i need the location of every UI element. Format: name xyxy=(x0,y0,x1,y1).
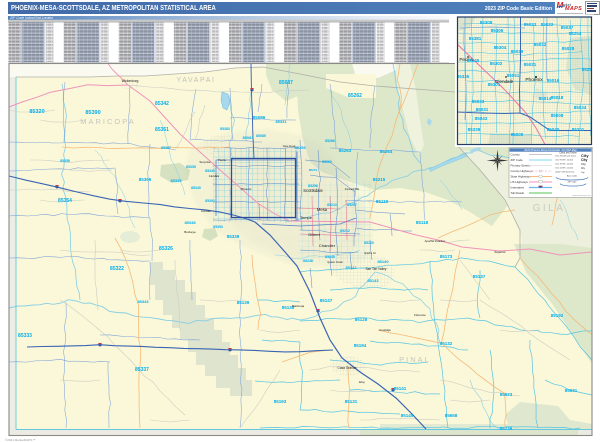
svg-text:85016: 85016 xyxy=(547,78,560,83)
svg-text:85193: 85193 xyxy=(274,399,287,404)
svg-text:State Highways: State Highways xyxy=(511,175,532,179)
svg-text:Superior: Superior xyxy=(494,250,505,254)
svg-text:85339: 85339 xyxy=(468,127,481,132)
svg-text:85264: 85264 xyxy=(380,149,393,154)
svg-text:85215: 85215 xyxy=(373,177,386,182)
svg-text:85658: 85658 xyxy=(445,413,458,418)
svg-text:85139: 85139 xyxy=(237,300,250,305)
svg-text:Eloy: Eloy xyxy=(359,380,365,384)
svg-text:85008: 85008 xyxy=(551,113,564,118)
svg-text:Avondale: Avondale xyxy=(201,210,212,213)
svg-text:85083: 85083 xyxy=(242,135,254,140)
svg-text:Toll Roads: Toll Roads xyxy=(511,191,525,195)
svg-text:GILA: GILA xyxy=(533,203,566,214)
svg-text:85173: 85173 xyxy=(440,254,453,259)
svg-text:85306: 85306 xyxy=(491,28,504,33)
svg-text:Under 9,999 (and less): Under 9,999 (and less) xyxy=(555,170,575,173)
svg-text:85387: 85387 xyxy=(161,146,171,150)
svg-text:Casa Grande: Casa Grande xyxy=(338,366,357,370)
svg-text:85087: 85087 xyxy=(279,80,293,86)
svg-text:85086: 85086 xyxy=(253,115,266,120)
svg-text:85262: 85262 xyxy=(348,93,362,99)
svg-text:Fountain Hills: Fountain Hills xyxy=(345,188,360,191)
svg-text:85353: 85353 xyxy=(213,225,223,229)
svg-text:85028: 85028 xyxy=(562,46,575,51)
svg-text:85260: 85260 xyxy=(322,160,332,164)
svg-text:US Highways: US Highways xyxy=(511,180,529,184)
svg-text:Phoenix: Phoenix xyxy=(525,77,543,83)
svg-text:YAVAPAI: YAVAPAI xyxy=(176,77,215,84)
svg-text:85335: 85335 xyxy=(170,178,182,183)
svg-text:85119: 85119 xyxy=(376,199,389,204)
svg-text:85213: 85213 xyxy=(327,203,337,207)
svg-text:85037: 85037 xyxy=(561,25,574,30)
svg-text:County: County xyxy=(511,153,521,157)
svg-text:85201: 85201 xyxy=(572,127,585,132)
svg-text:85631: 85631 xyxy=(565,388,578,393)
svg-text:85302: 85302 xyxy=(490,61,503,66)
svg-text:Interstates: Interstates xyxy=(511,186,525,190)
svg-text:85032: 85032 xyxy=(534,42,547,47)
svg-text:Chandler: Chandler xyxy=(319,243,336,248)
svg-text:85255: 85255 xyxy=(294,145,306,150)
svg-text:85043: 85043 xyxy=(475,116,488,121)
svg-text:85308: 85308 xyxy=(480,20,493,25)
svg-text:85131: 85131 xyxy=(345,399,358,404)
svg-text:85381: 85381 xyxy=(469,36,482,41)
svg-text:Cities and Towns: Cities and Towns xyxy=(559,151,577,154)
svg-text:85051: 85051 xyxy=(507,73,520,78)
svg-text:85320: 85320 xyxy=(29,109,44,115)
svg-text:85301: 85301 xyxy=(488,82,501,87)
svg-text:85033: 85033 xyxy=(472,99,485,104)
svg-text:85340: 85340 xyxy=(191,186,201,190)
svg-text:85361: 85361 xyxy=(155,127,169,133)
svg-text:85254: 85254 xyxy=(569,31,582,36)
svg-text:ZIP Code: ZIP Code xyxy=(511,158,524,162)
svg-text:Gilbert: Gilbert xyxy=(308,232,321,237)
svg-text:85137: 85137 xyxy=(473,274,486,279)
svg-text:85142: 85142 xyxy=(345,265,357,270)
svg-text:Over 99,999 - 50,000: Over 99,999 - 50,000 xyxy=(555,158,573,161)
svg-text:Tempe: Tempe xyxy=(300,215,313,220)
svg-text:85322: 85322 xyxy=(110,266,124,272)
svg-text:ZIP Code: ZIP Code xyxy=(568,182,578,184)
svg-text:85383: 85383 xyxy=(220,127,230,131)
svg-text:Scottsdale: Scottsdale xyxy=(303,188,323,193)
svg-text:PINAL: PINAL xyxy=(399,355,431,364)
svg-text:85031: 85031 xyxy=(476,107,489,112)
svg-text:Buckeye: Buckeye xyxy=(184,230,196,234)
svg-text:85143: 85143 xyxy=(367,278,379,283)
svg-text:85207: 85207 xyxy=(347,203,357,207)
svg-text:85040: 85040 xyxy=(547,127,560,132)
svg-text:85304: 85304 xyxy=(494,45,507,50)
svg-text:85345: 85345 xyxy=(467,58,480,63)
svg-text:Apache Jct: Apache Jct xyxy=(364,252,376,255)
svg-text:Peoria: Peoria xyxy=(218,158,226,162)
svg-text:Over 49,999 - 25,000: Over 49,999 - 25,000 xyxy=(555,162,573,165)
svg-text:85358: 85358 xyxy=(60,159,70,163)
svg-text:85739: 85739 xyxy=(500,426,513,431)
svg-text:85212: 85212 xyxy=(340,229,350,233)
svg-text:Over 250,000 and Towns: Over 250,000 and Towns xyxy=(555,154,576,157)
svg-text:Queen Creek: Queen Creek xyxy=(327,260,343,264)
svg-text:85354: 85354 xyxy=(58,198,72,204)
svg-text:Wickenburg: Wickenburg xyxy=(122,79,139,83)
svg-text:85623: 85623 xyxy=(500,392,513,397)
svg-text:85145: 85145 xyxy=(401,413,414,418)
svg-text:85266: 85266 xyxy=(325,139,335,143)
svg-text:85335: 85335 xyxy=(457,74,470,79)
svg-text:Primary Streets: Primary Streets xyxy=(511,164,531,168)
svg-text:San Tan Valley: San Tan Valley xyxy=(366,267,387,271)
svg-text:85034: 85034 xyxy=(574,105,587,110)
svg-text:85390: 85390 xyxy=(85,110,100,116)
svg-text:Apache Junction: Apache Junction xyxy=(425,239,446,243)
svg-text:85132: 85132 xyxy=(440,341,453,346)
svg-text:85345: 85345 xyxy=(205,169,215,173)
svg-text:85355: 85355 xyxy=(186,165,196,169)
svg-text:85120: 85120 xyxy=(364,241,374,245)
svg-text:85021: 85021 xyxy=(524,62,537,67)
svg-text:www.marketmaps.com: www.marketmaps.com xyxy=(572,194,591,197)
svg-text:85147: 85147 xyxy=(320,298,333,303)
svg-text:85396: 85396 xyxy=(139,177,152,182)
svg-text:2023 Phoenix-Mesa-Scottsdale,: 2023 Phoenix-Mesa-Scottsdale, AZ MSA Map xyxy=(524,148,577,152)
svg-text:Area Code: Area Code xyxy=(567,174,578,177)
svg-text:85331: 85331 xyxy=(275,119,287,124)
svg-text:85140: 85140 xyxy=(377,259,389,264)
svg-text:85192: 85192 xyxy=(551,313,564,318)
svg-text:85249: 85249 xyxy=(325,255,335,259)
svg-text:Cave Creek: Cave Creek xyxy=(283,145,296,148)
svg-text:85141: 85141 xyxy=(394,386,407,391)
svg-text:Coolidge: Coolidge xyxy=(379,328,391,332)
svg-text:Over 24,999 - 10,000: Over 24,999 - 10,000 xyxy=(555,166,573,169)
svg-text:85128: 85128 xyxy=(355,317,368,322)
svg-text:85023: 85023 xyxy=(524,22,537,27)
svg-text:85339: 85339 xyxy=(227,234,240,239)
svg-text:Maricopa: Maricopa xyxy=(292,304,305,308)
svg-text:Florence: Florence xyxy=(414,313,426,317)
svg-text:85018: 85018 xyxy=(551,95,564,100)
svg-text:Glendale: Glendale xyxy=(209,174,220,178)
svg-text:85343: 85343 xyxy=(137,299,149,304)
svg-text:85251: 85251 xyxy=(309,168,318,172)
svg-text:City: City xyxy=(581,171,584,174)
svg-text:85029: 85029 xyxy=(511,49,524,54)
svg-text:85392: 85392 xyxy=(205,199,215,203)
svg-text:85009: 85009 xyxy=(511,132,524,137)
svg-text:85333: 85333 xyxy=(18,333,32,339)
svg-text:85194: 85194 xyxy=(354,343,367,348)
svg-text:85022: 85022 xyxy=(541,22,554,27)
svg-text:Surprise: Surprise xyxy=(199,160,211,164)
svg-text:85326: 85326 xyxy=(159,246,173,252)
svg-text:85118: 85118 xyxy=(416,220,429,225)
svg-text:MARICOPA: MARICOPA xyxy=(80,117,135,126)
svg-text:85338: 85338 xyxy=(184,220,196,225)
svg-text:85263: 85263 xyxy=(339,148,352,153)
svg-text:85337: 85337 xyxy=(135,367,149,373)
svg-text:85248: 85248 xyxy=(303,259,313,263)
svg-text:85014: 85014 xyxy=(539,96,552,101)
svg-text:85342: 85342 xyxy=(155,101,169,107)
svg-text:Phoenix: Phoenix xyxy=(241,187,252,191)
svg-text:Mesa: Mesa xyxy=(317,207,328,212)
svg-text:City: City xyxy=(581,162,586,166)
svg-text:85085: 85085 xyxy=(256,134,266,138)
